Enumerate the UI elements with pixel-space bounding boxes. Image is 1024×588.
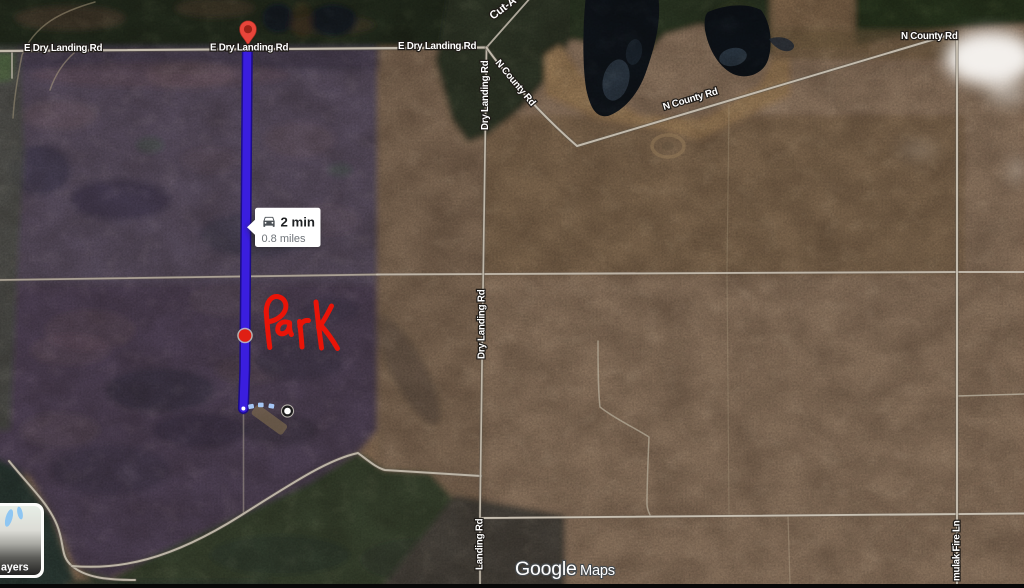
svg-text:ayers: ayers [1, 562, 29, 574]
svg-text:Dry Landing Rd: Dry Landing Rd [480, 60, 491, 130]
svg-text:Landing Rd: Landing Rd [475, 518, 486, 570]
svg-text:2 min: 2 min [281, 214, 315, 229]
svg-text:Dry Landing Rd: Dry Landing Rd [477, 289, 488, 359]
svg-text:N County Rd: N County Rd [901, 31, 958, 42]
svg-text:0.8 miles: 0.8 miles [262, 233, 307, 245]
svg-text:E Dry Landing Rd: E Dry Landing Rd [24, 43, 102, 54]
svg-text:Google: Google [515, 558, 577, 580]
svg-text:mulak Fire Ln: mulak Fire Ln [952, 520, 963, 581]
svg-text:Maps: Maps [580, 563, 615, 579]
svg-text:E Dry Landing Rd: E Dry Landing Rd [398, 41, 476, 52]
svg-text:E Dry Landing Rd: E Dry Landing Rd [210, 43, 288, 54]
